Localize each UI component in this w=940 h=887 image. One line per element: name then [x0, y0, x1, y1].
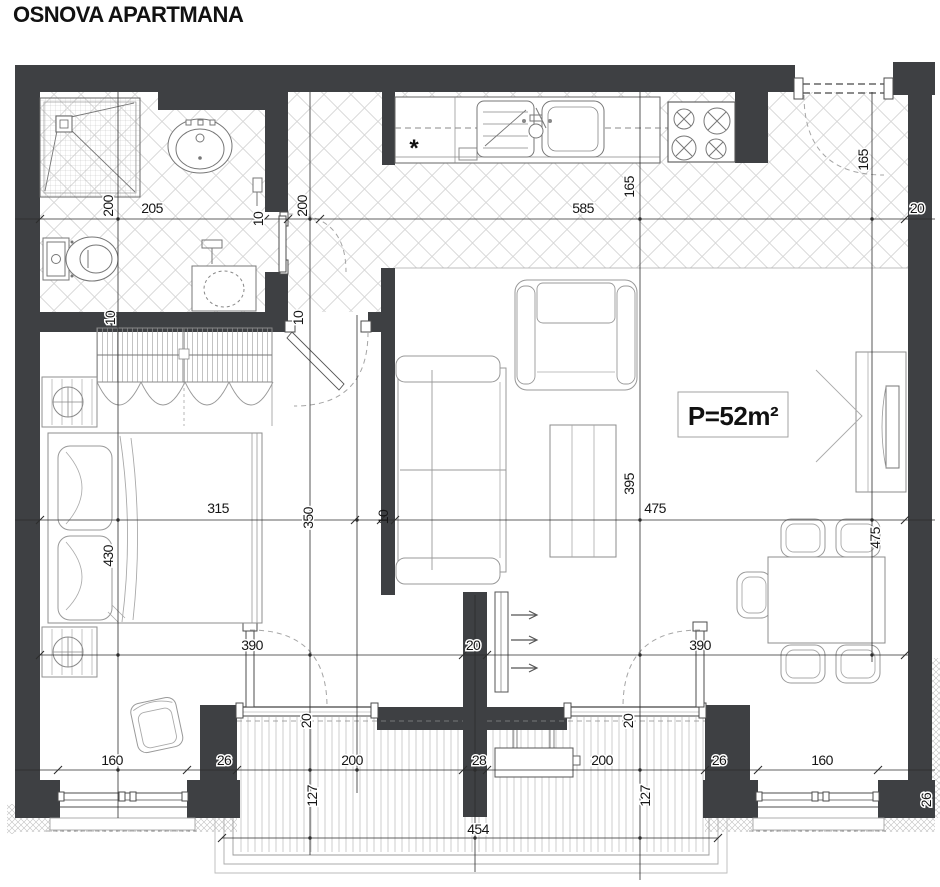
- pillow: [58, 446, 112, 530]
- dining-chair: [737, 572, 771, 618]
- dim-window-right: 160: [811, 752, 833, 768]
- shower: [40, 98, 140, 197]
- hanging-clothes-icon: [97, 382, 273, 405]
- floorplan-page: OSNOVA APARTMANA: [0, 0, 940, 887]
- dining-table: [768, 557, 885, 643]
- window-left: [46, 792, 199, 831]
- sofa-armrest: [396, 356, 500, 382]
- bed: [48, 433, 262, 623]
- dim-bath-height: 200: [100, 194, 116, 216]
- dim-sill-left: 20: [298, 713, 314, 728]
- area-label-box: P=52m²: [678, 392, 788, 437]
- tv-unit: [816, 352, 906, 492]
- dim-hall-height: 350: [300, 506, 316, 528]
- dim-wall-mid: 20: [466, 637, 481, 653]
- dim-terrace-depth-right: 127: [637, 784, 653, 806]
- dim-living-width: 475: [644, 500, 666, 516]
- dining-chair: [781, 519, 825, 557]
- dim-living-height: 395: [621, 472, 637, 494]
- dim-wall10-a: 10: [250, 211, 266, 226]
- dim-terrace-depth-left: 127: [304, 784, 320, 806]
- window-sill: [50, 818, 195, 830]
- balcony-door-right: [564, 622, 707, 718]
- floor-plan: 205 585 20 315 475 390 20 390 160 26 200…: [0, 0, 940, 887]
- dim-wall10-d: 10: [375, 509, 391, 524]
- tv-icon: [886, 386, 899, 468]
- dim-seg26-side: 26: [918, 792, 934, 807]
- area-label: P=52m²: [688, 401, 779, 431]
- dim-kitchen-depth: 165: [621, 175, 637, 197]
- dim-hall-width: 200: [294, 194, 310, 216]
- dining-chair: [836, 645, 880, 683]
- dim-balcony-door-right: 390: [689, 637, 711, 653]
- nightstand-top: [42, 377, 97, 427]
- dim-wall10-b: 10: [102, 310, 118, 325]
- wardrobe: [97, 328, 273, 426]
- bathroom-sink: [168, 119, 232, 173]
- shower-drain: [56, 116, 72, 132]
- airflow-arrows: [511, 611, 537, 672]
- dim-balcony-right: 200: [591, 752, 613, 768]
- door-jamb: [794, 78, 803, 99]
- dim-terrace-total: 454: [467, 821, 489, 837]
- radiator-vent: [495, 592, 537, 692]
- dim-bed-width: 315: [207, 500, 229, 516]
- dim-living-height-right: 475: [867, 526, 883, 548]
- tv-viewing-lines: [816, 370, 862, 462]
- faucet-icon: [529, 124, 543, 138]
- dim-wall10-c: 10: [290, 310, 306, 325]
- stove: [668, 102, 735, 162]
- bedroom-door: [285, 321, 371, 406]
- facade-band-left-side: [7, 804, 15, 834]
- dim-window-left: 160: [101, 752, 123, 768]
- sofa-armrest: [396, 558, 500, 584]
- kitchen-asterisk: *: [409, 135, 419, 162]
- dining-chair: [781, 645, 825, 683]
- dim-balcony-door-left: 390: [241, 637, 263, 653]
- dim-seg26-right: 26: [712, 752, 727, 768]
- dim-sill-right: 20: [620, 713, 636, 728]
- dim-balcony-left: 200: [341, 752, 363, 768]
- dim-bath-width: 205: [141, 200, 163, 216]
- door-jamb: [884, 78, 893, 99]
- window-sill: [753, 818, 884, 830]
- sofa: [396, 356, 506, 584]
- dim-wall-right: 20: [910, 200, 925, 216]
- toilet: [43, 237, 118, 281]
- dim-bedroom-height: 430: [100, 544, 116, 566]
- dim-kitchen-length: 585: [572, 200, 594, 216]
- dim-seg26-left: 26: [217, 752, 232, 768]
- window-right: [749, 792, 888, 831]
- coffee-table: [550, 425, 616, 557]
- dim-entry-depth: 165: [855, 148, 871, 170]
- bedroom-chair: [129, 696, 184, 754]
- nightstand-bottom: [42, 627, 97, 677]
- dining-set: [737, 519, 885, 683]
- armchair: [515, 280, 637, 390]
- dim-seg28: 28: [472, 752, 487, 768]
